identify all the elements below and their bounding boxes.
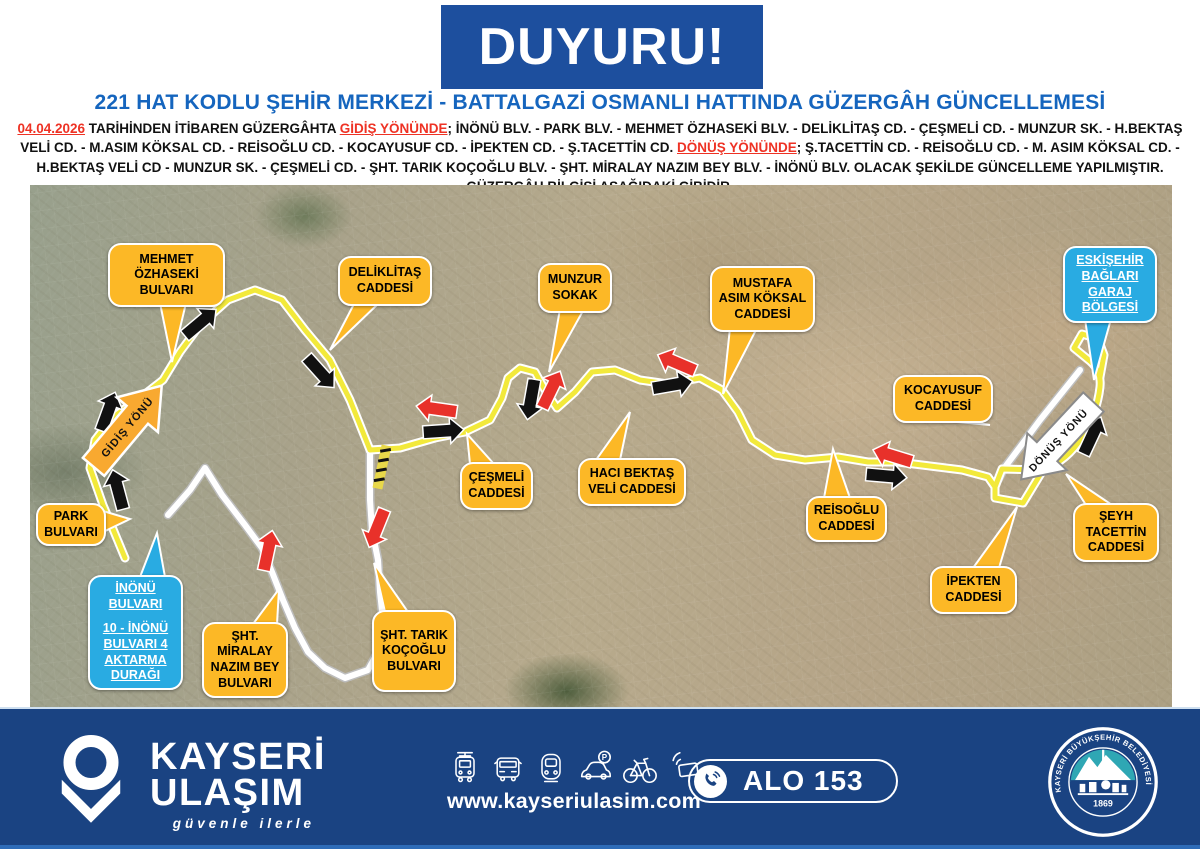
return-direction-label: DÖNÜŞ YÖNÜNDE bbox=[677, 140, 797, 155]
transport-icons: P bbox=[447, 749, 706, 787]
tram-icon bbox=[447, 749, 483, 787]
transfer-stop-line1: İNÖNÜ BULVARI bbox=[95, 581, 176, 612]
callout-park-bulvari: PARK BULVARI bbox=[36, 503, 106, 546]
body-segment: TARİHİNDEN İTİBAREN GÜZERGÂHTA bbox=[85, 121, 340, 136]
effective-date: 04.04.2026 bbox=[17, 121, 85, 136]
callout-sht-miralay-nazim-bey-bulvari: ŞHT. MİRALAY NAZIM BEY BULVARI bbox=[202, 622, 288, 698]
callout-reisoglu-caddesi: REİSOĞLU CADDESİ bbox=[806, 496, 887, 542]
callout-cesmeli-caddesi: ÇEŞMELİ CADDESİ bbox=[460, 462, 533, 510]
parking-letter: P bbox=[602, 753, 608, 762]
hotline-number: ALO 153 bbox=[743, 765, 864, 797]
kayseri-municipality-emblem: 1869 KAYSERİ BÜYÜKŞEHİR BELEDİYESİ bbox=[1047, 726, 1159, 838]
bus-icon bbox=[490, 749, 526, 787]
callout-munzur-sokak: MUNZUR SOKAK bbox=[538, 263, 612, 313]
callout-eskisehir-baglari-garaj-bolgesi: ESKİŞEHİR BAĞLARI GARAJ BÖLGESİ bbox=[1063, 246, 1157, 323]
callout-seyh-tacettin-caddesi: ŞEYH TACETTİN CADDESİ bbox=[1073, 503, 1159, 562]
metro-icon bbox=[533, 749, 569, 787]
car-parking-icon: P bbox=[576, 749, 614, 787]
callout-sht-tarik-kocoglu-bulvari: ŞHT. TARIK KOÇOĞLU BULVARI bbox=[372, 610, 456, 692]
brand-line1: KAYSERİ bbox=[150, 739, 315, 775]
hotline-badge: ALO 153 bbox=[688, 759, 898, 803]
donus-arrow-red bbox=[653, 343, 701, 383]
announcement-poster: DUYURU! 221 HAT KODLU ŞEHİR MERKEZİ - BA… bbox=[0, 0, 1200, 849]
direction-arrows bbox=[89, 300, 1113, 574]
callout-ipekten-caddesi: İPEKTEN CADDESİ bbox=[930, 566, 1017, 614]
callout-haci-bektas-veli-caddesi: HACI BEKTAŞ VELİ CADDESİ bbox=[578, 458, 686, 506]
phone-icon bbox=[694, 765, 727, 798]
route-map: GİDİŞ YÖNÜ DÖNÜŞ YÖNÜ MEHMET ÖZHASEKİ BU… bbox=[30, 185, 1172, 707]
website-link[interactable]: www.kayseriulasim.com bbox=[447, 789, 667, 814]
brand-line2: ULAŞIM bbox=[150, 775, 315, 811]
callout-deliklitas-caddesi: DELİKLİTAŞ CADDESİ bbox=[338, 256, 432, 306]
callout-kocayusuf-caddesi: KOCAYUSUF CADDESİ bbox=[893, 375, 993, 423]
callout-mehmet-ozhaseki-bulvari: MEHMET ÖZHASEKİ BULVARI bbox=[108, 243, 225, 307]
footer: KAYSERİ ULAŞIM güvenle ilerle bbox=[0, 707, 1200, 849]
callout-inonu-bulvari-aktarma-duragi: İNÖNÜ BULVARI 10 - İNÖNÜ BULVARI 4 AKTAR… bbox=[88, 575, 183, 690]
bicycle-icon bbox=[621, 749, 659, 787]
title-banner: DUYURU! bbox=[441, 5, 763, 89]
transfer-stop-line2: 10 - İNÖNÜ BULVARI 4 AKTARMA DURAĞI bbox=[95, 621, 176, 684]
brand-wordmark: KAYSERİ ULAŞIM güvenle ilerle bbox=[150, 739, 315, 831]
route-update-subtitle: 221 HAT KODLU ŞEHİR MERKEZİ - BATTALGAZİ… bbox=[0, 91, 1200, 115]
outbound-direction-label: GİDİŞ YÖNÜNDE bbox=[340, 121, 448, 136]
page-title: DUYURU! bbox=[479, 17, 726, 77]
brand-tagline: güvenle ilerle bbox=[150, 818, 315, 831]
callout-mustafa-asim-koksal-caddesi: MUSTAFA ASIM KÖKSAL CADDESİ bbox=[710, 266, 815, 332]
kayseri-ulasim-pin-icon bbox=[48, 728, 134, 828]
garage-label: ESKİŞEHİR BAĞLARI GARAJ BÖLGESİ bbox=[1070, 253, 1150, 316]
emblem-year: 1869 bbox=[1093, 798, 1113, 808]
